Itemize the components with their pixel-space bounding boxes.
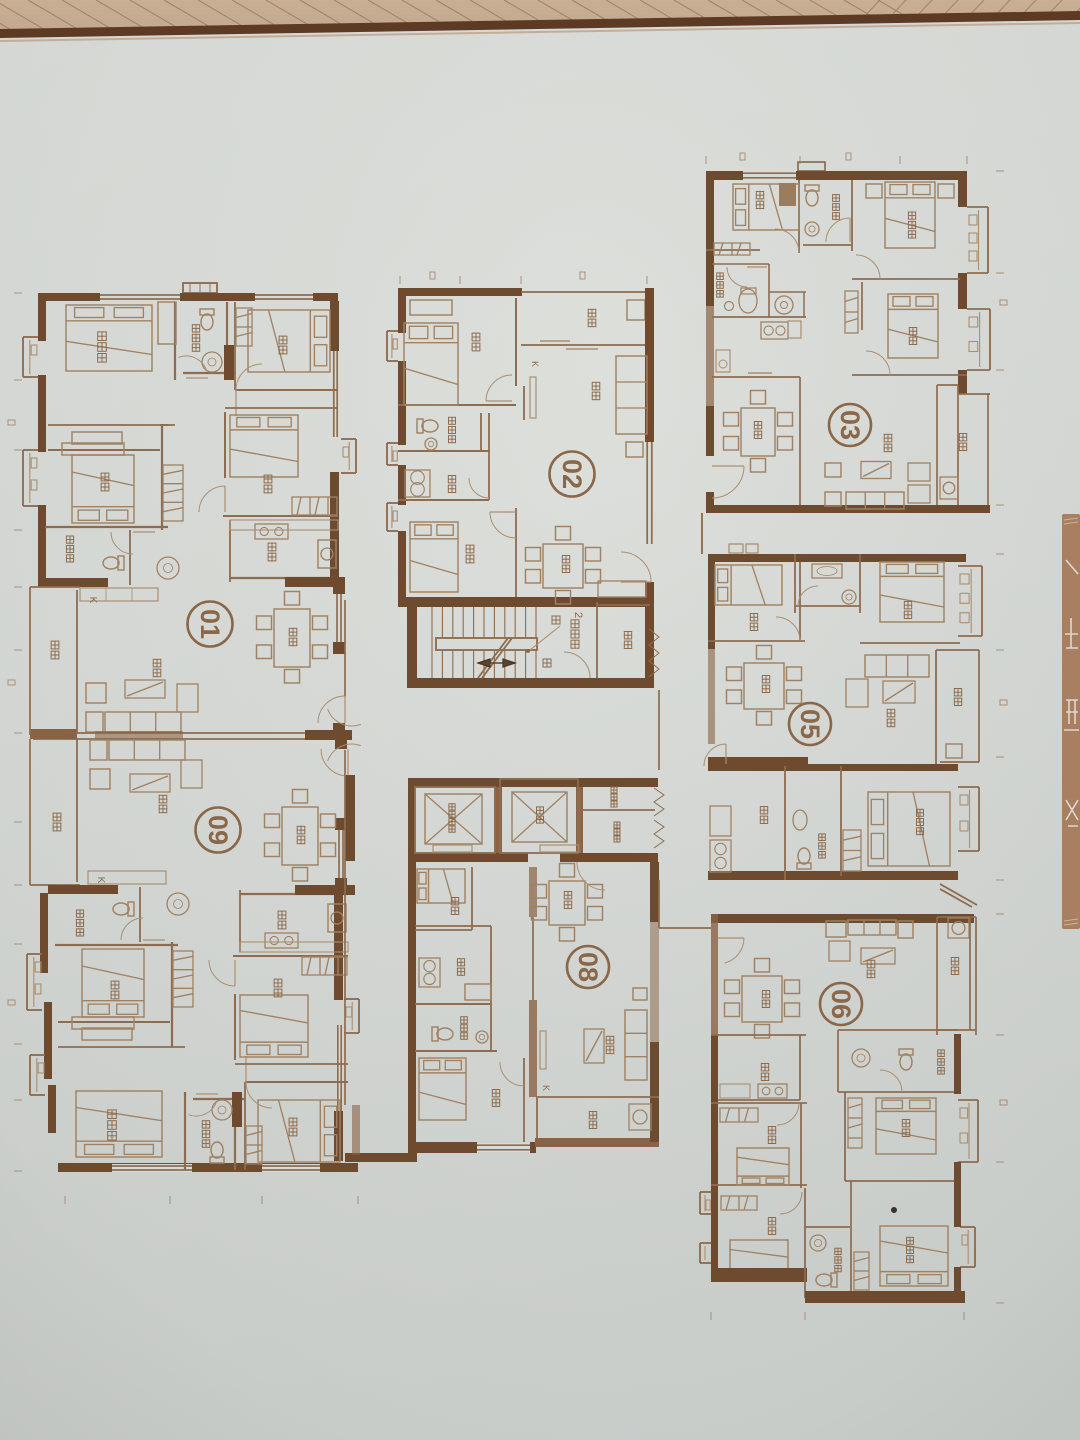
svg-text:08: 08 <box>573 952 603 982</box>
svg-text:01: 01 <box>195 609 225 639</box>
svg-text:06: 06 <box>826 989 856 1019</box>
svg-text:02: 02 <box>557 459 587 489</box>
svg-text:03: 03 <box>835 410 865 440</box>
svg-text:05: 05 <box>795 709 825 739</box>
svg-text:K: K <box>530 361 540 367</box>
svg-text:2: 2 <box>572 612 584 618</box>
svg-text:K: K <box>95 877 106 884</box>
svg-text:09: 09 <box>203 815 233 845</box>
svg-text:K: K <box>541 1085 551 1091</box>
svg-text:K: K <box>87 597 98 604</box>
